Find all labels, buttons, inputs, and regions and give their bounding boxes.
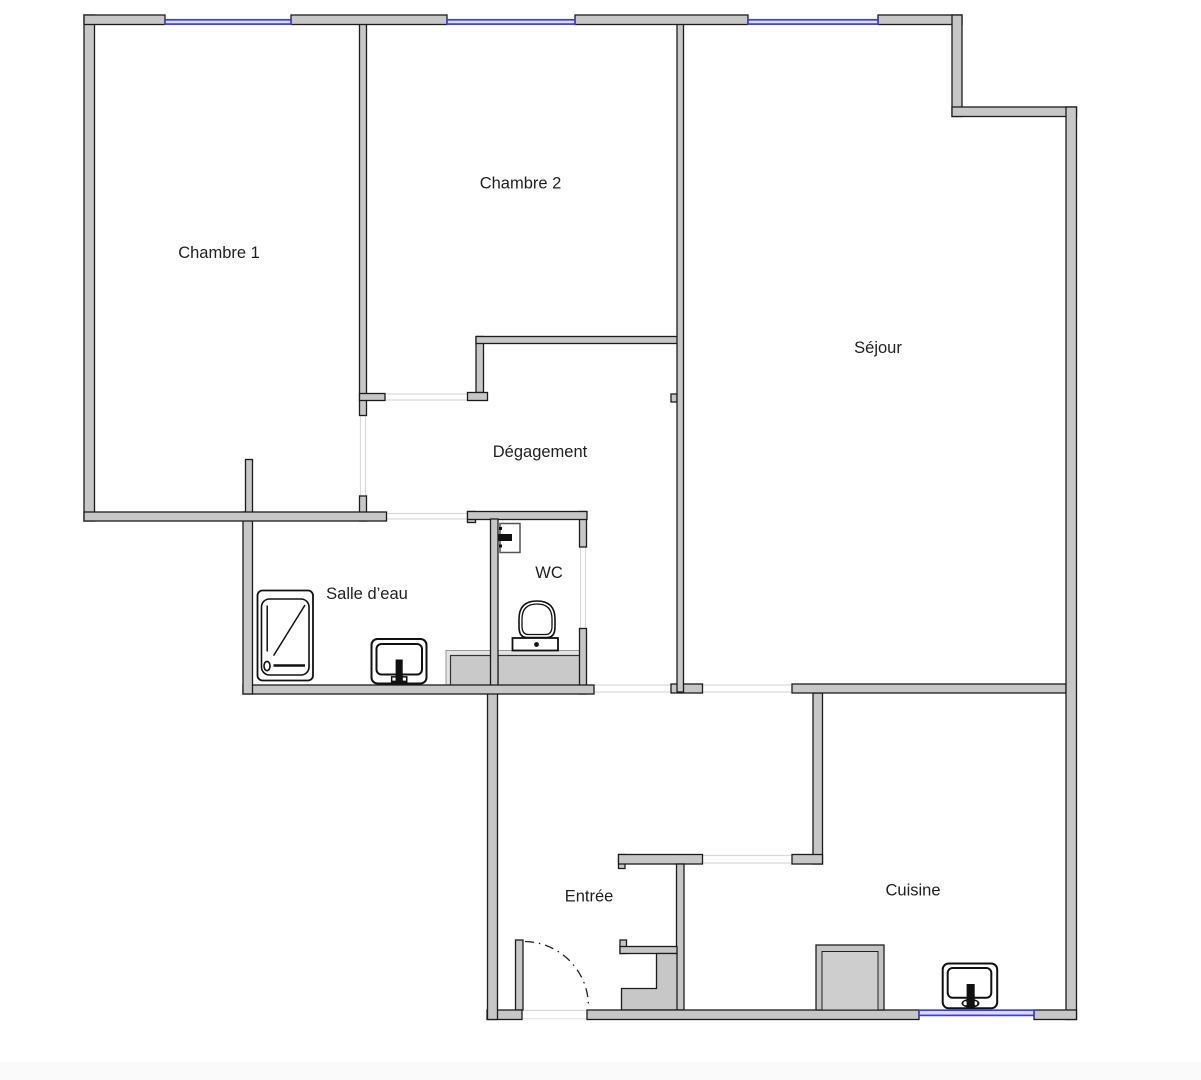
svg-text:Cuisine: Cuisine bbox=[885, 882, 940, 900]
svg-text:Entrée: Entrée bbox=[565, 888, 614, 906]
svg-text:Chambre 2: Chambre 2 bbox=[480, 175, 562, 193]
svg-text:Dégagement: Dégagement bbox=[493, 443, 588, 461]
svg-text:WC: WC bbox=[535, 564, 563, 582]
svg-text:Salle d’eau: Salle d’eau bbox=[326, 585, 408, 603]
svg-text:Séjour: Séjour bbox=[854, 339, 902, 357]
svg-text:Chambre 1: Chambre 1 bbox=[178, 244, 260, 262]
